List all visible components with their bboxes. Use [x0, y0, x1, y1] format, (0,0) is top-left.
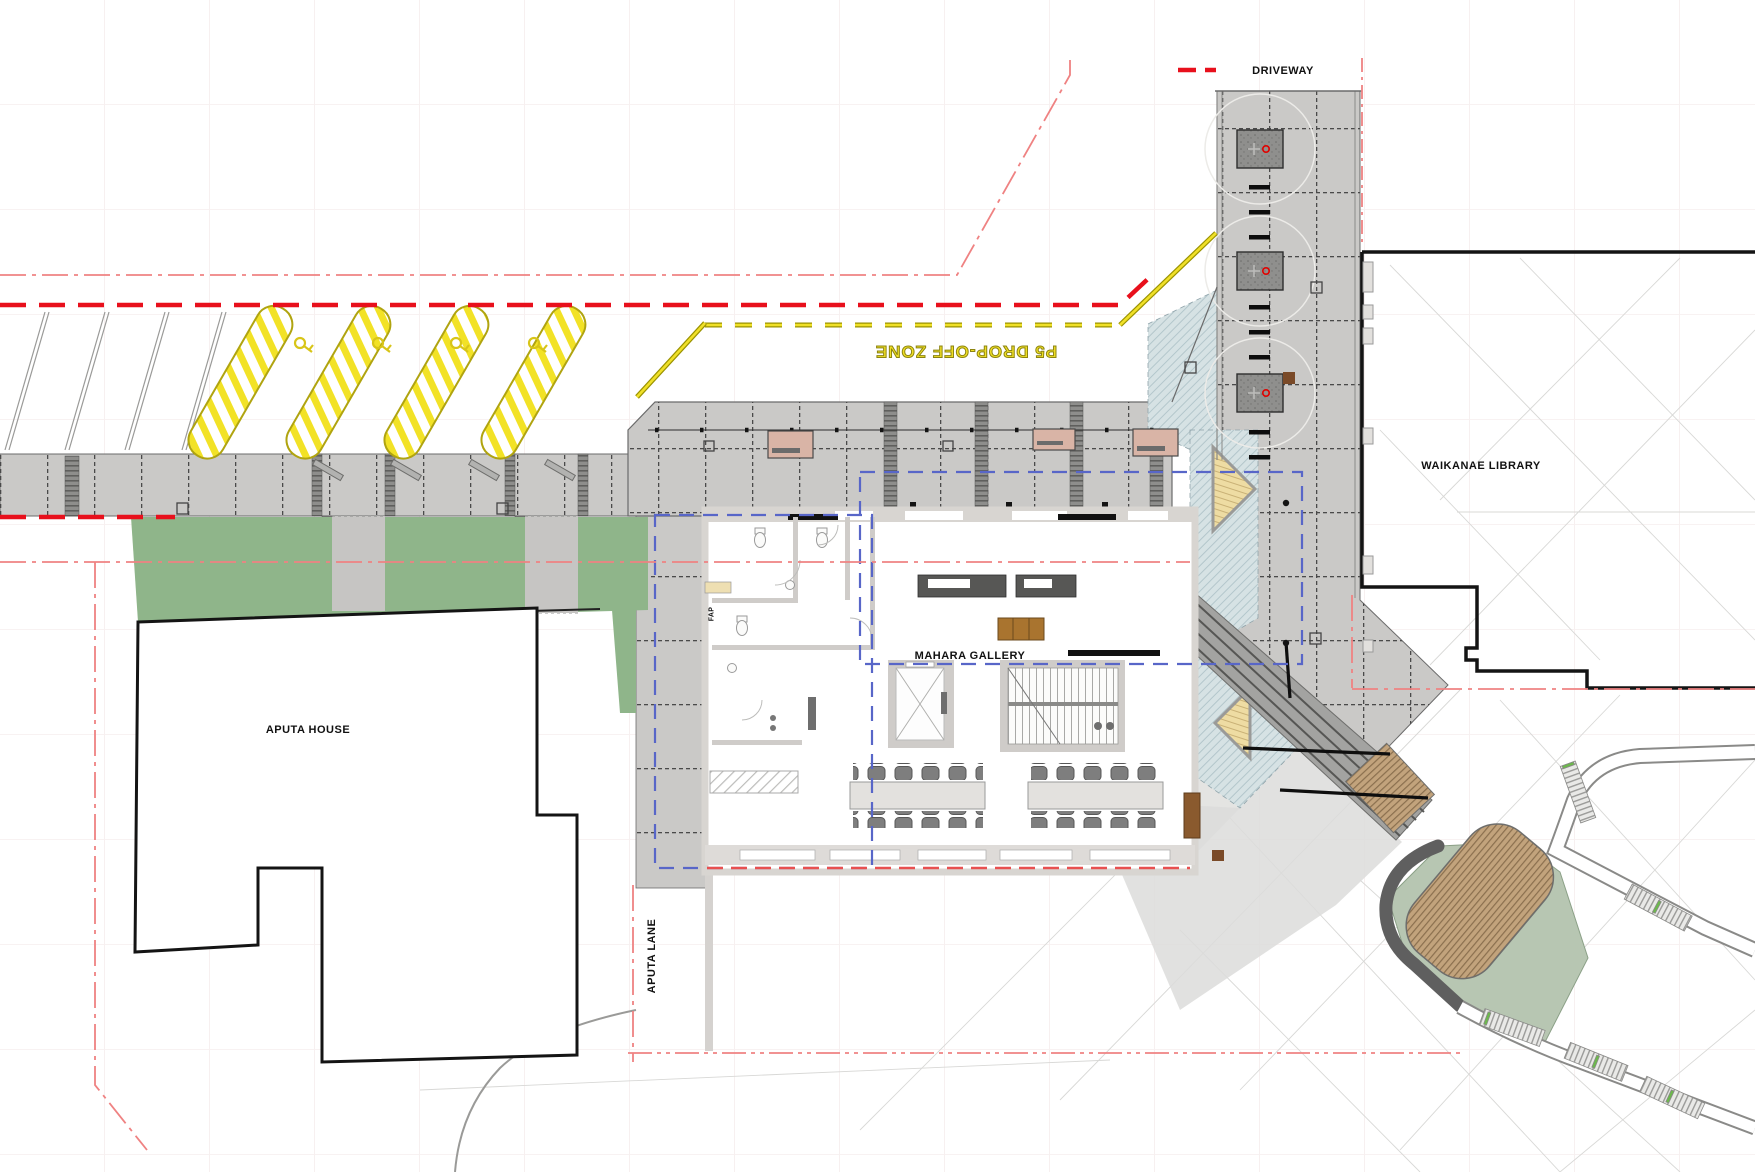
lane-label: APUTA LANE: [646, 919, 658, 994]
pram-symbol-icons: [295, 338, 547, 352]
driveway-label: DRIVEWAY: [1252, 65, 1314, 77]
parking-bays: [5, 299, 592, 480]
display-wall: [1068, 650, 1160, 656]
internal-ramp: [710, 771, 798, 793]
reception-table: [998, 618, 1044, 640]
no-parking-hatched-bars: [182, 299, 592, 465]
stair: [1000, 660, 1125, 752]
library-door-tabs: [1363, 262, 1373, 652]
bin-2: [1212, 850, 1224, 861]
gallery-label: MAHARA GALLERY: [915, 650, 1026, 662]
cabinet: [1184, 793, 1200, 838]
elevator: [888, 660, 954, 748]
dropoff-zone-label: P5 DROP-OFF ZONE: [875, 341, 1057, 361]
fap-label: FAP: [709, 607, 716, 622]
kitchen-counters: [918, 575, 1076, 597]
site-plan-canvas: DRIVEWAY WAIKANAE LIBRARY APUTA HOUSE MA…: [0, 0, 1755, 1172]
yellow-road-markings: [637, 233, 1216, 397]
house-label: APUTA HOUSE: [266, 724, 350, 736]
bin: [1283, 372, 1295, 384]
aputa-house-outline: [135, 608, 577, 1062]
site-plan-drawing: [0, 0, 1755, 1172]
library-label: WAIKANAE LIBRARY: [1421, 460, 1540, 472]
